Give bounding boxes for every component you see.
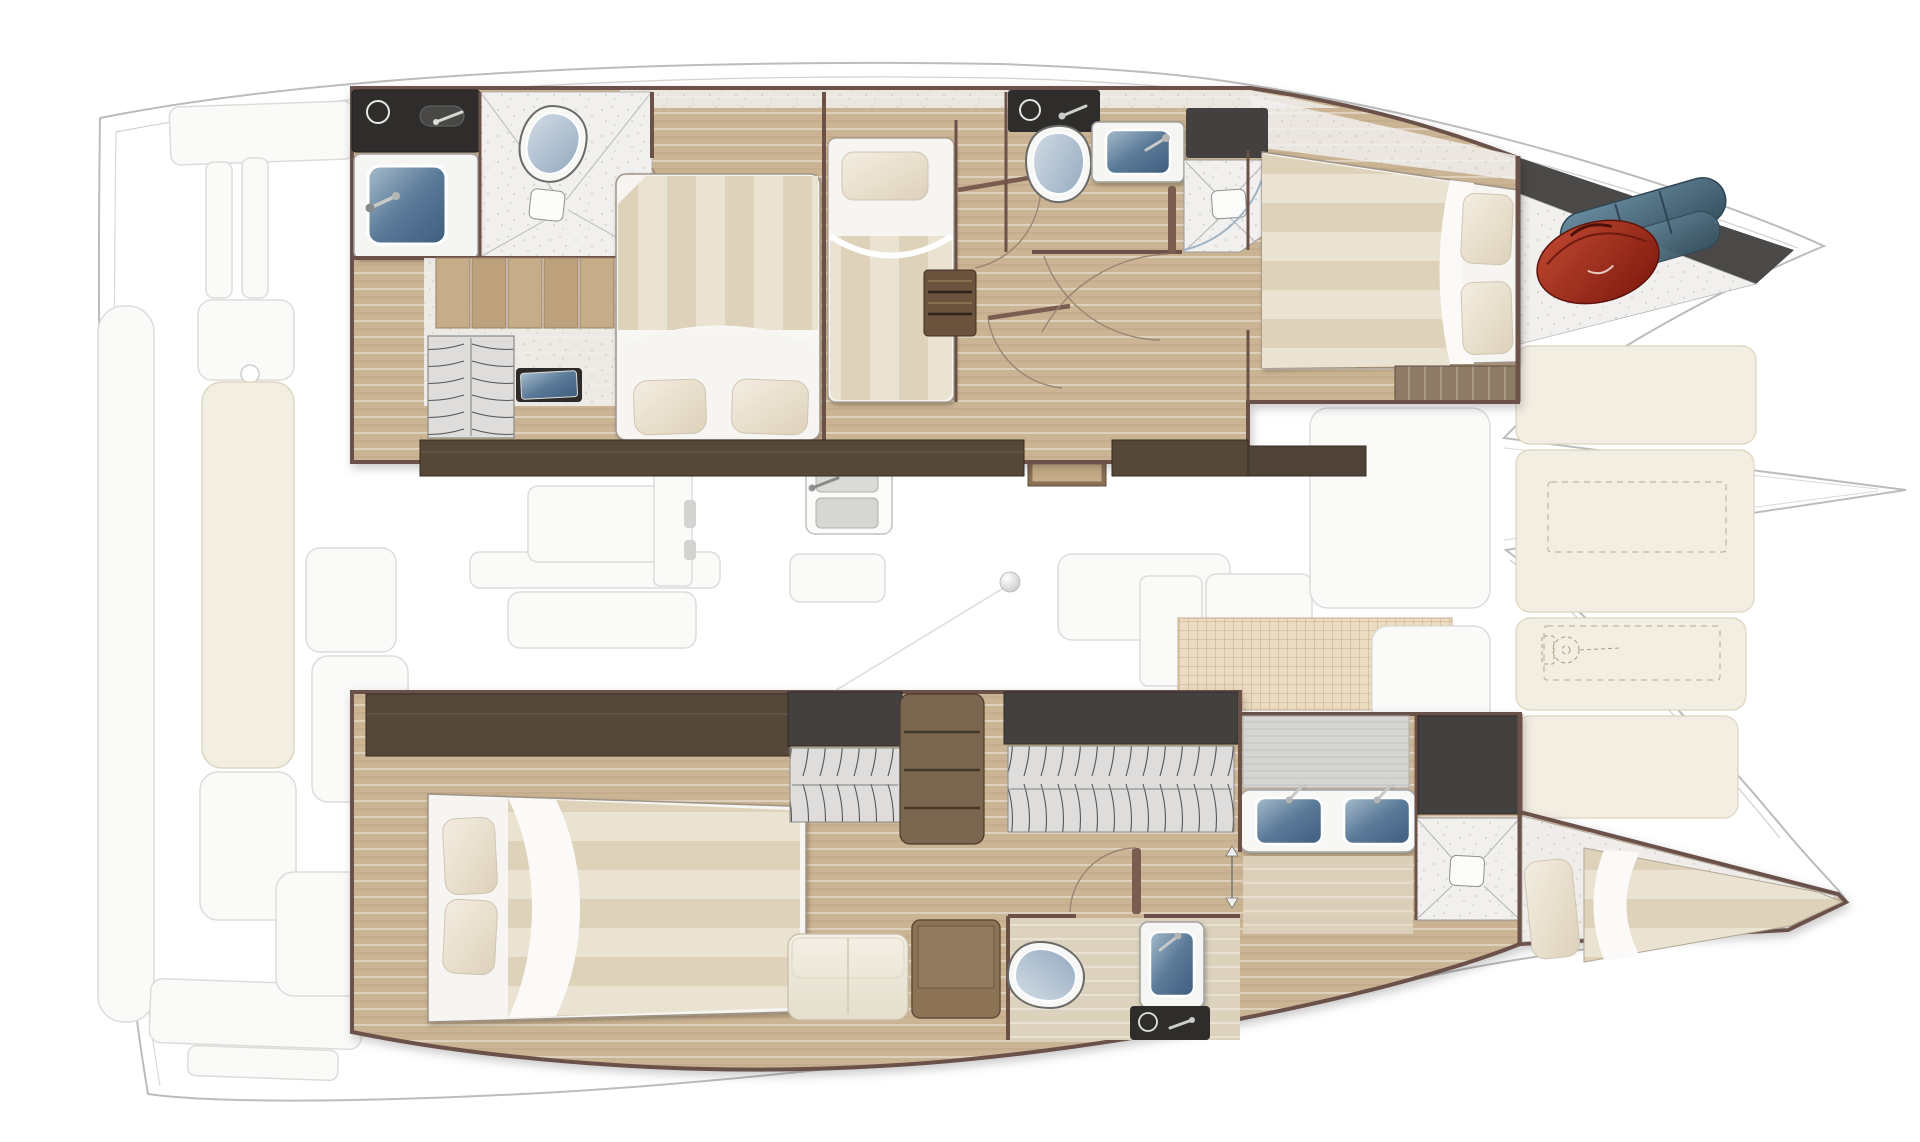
double-berth	[616, 174, 820, 440]
pillow	[442, 817, 498, 896]
sliding-door	[654, 458, 696, 586]
pillow	[842, 152, 928, 200]
drain	[1449, 855, 1485, 887]
swim-platform	[98, 306, 154, 1022]
transom-step	[169, 101, 355, 165]
counter-dark	[1130, 1006, 1210, 1040]
double-sink-vanity-area	[1226, 692, 1522, 944]
foredeck-cushion	[1516, 346, 1756, 444]
foredeck-cushion	[1516, 716, 1738, 818]
sink-vanity	[1092, 122, 1184, 182]
compass-ball	[1000, 572, 1020, 592]
swim-step	[188, 1045, 339, 1080]
cockpit-seat-ghost	[306, 548, 396, 652]
shower	[1184, 160, 1268, 252]
pillow	[633, 379, 707, 435]
pillow	[442, 899, 498, 976]
drain	[529, 188, 566, 221]
pillow	[1461, 281, 1513, 355]
double-sink-vanity	[1240, 786, 1416, 852]
counter-gray	[1243, 716, 1409, 788]
pillow	[1460, 193, 1514, 266]
cockpit-bench-cushion	[202, 382, 294, 768]
foredeck-cushion	[1516, 450, 1754, 612]
bed-foot-platform	[1395, 366, 1518, 402]
davit-arm	[206, 162, 232, 298]
desk	[912, 920, 1000, 1018]
shelf-unit	[900, 694, 984, 844]
tv-screen	[516, 368, 582, 402]
deck-hatch	[790, 554, 885, 602]
double-berth-aft	[428, 794, 806, 1022]
louver-locker	[428, 336, 514, 438]
wardrobe-band	[366, 694, 790, 756]
steps	[436, 258, 614, 328]
sink-vanity	[354, 154, 478, 258]
louver-locker	[788, 692, 902, 822]
shower	[1416, 818, 1520, 920]
wardrobe-band	[420, 440, 1366, 476]
sink-vanity	[1140, 922, 1204, 1008]
catamaran-floorplan	[0, 0, 1920, 1142]
sofa	[788, 934, 908, 1020]
door	[1168, 186, 1176, 254]
deck-fitting	[241, 365, 259, 383]
counter-dark	[352, 90, 480, 152]
locker-dark	[1186, 108, 1268, 158]
head-floor-strip	[1243, 856, 1413, 934]
pillow	[1523, 858, 1581, 960]
foredeck-cushion	[1516, 618, 1746, 710]
side-deck-gutter	[620, 90, 1340, 108]
companionway-steps-port	[924, 270, 976, 336]
louver-locker	[1004, 692, 1238, 832]
vip-berth	[1262, 152, 1518, 368]
foredeck-panel-ghost	[1310, 408, 1490, 608]
davit-arm	[242, 158, 268, 298]
saloon-sofa-ghost	[508, 592, 696, 648]
tall-cabinet	[1418, 716, 1522, 814]
door	[1132, 848, 1141, 914]
pillow	[731, 379, 809, 436]
cockpit-table-ghost	[528, 486, 668, 562]
